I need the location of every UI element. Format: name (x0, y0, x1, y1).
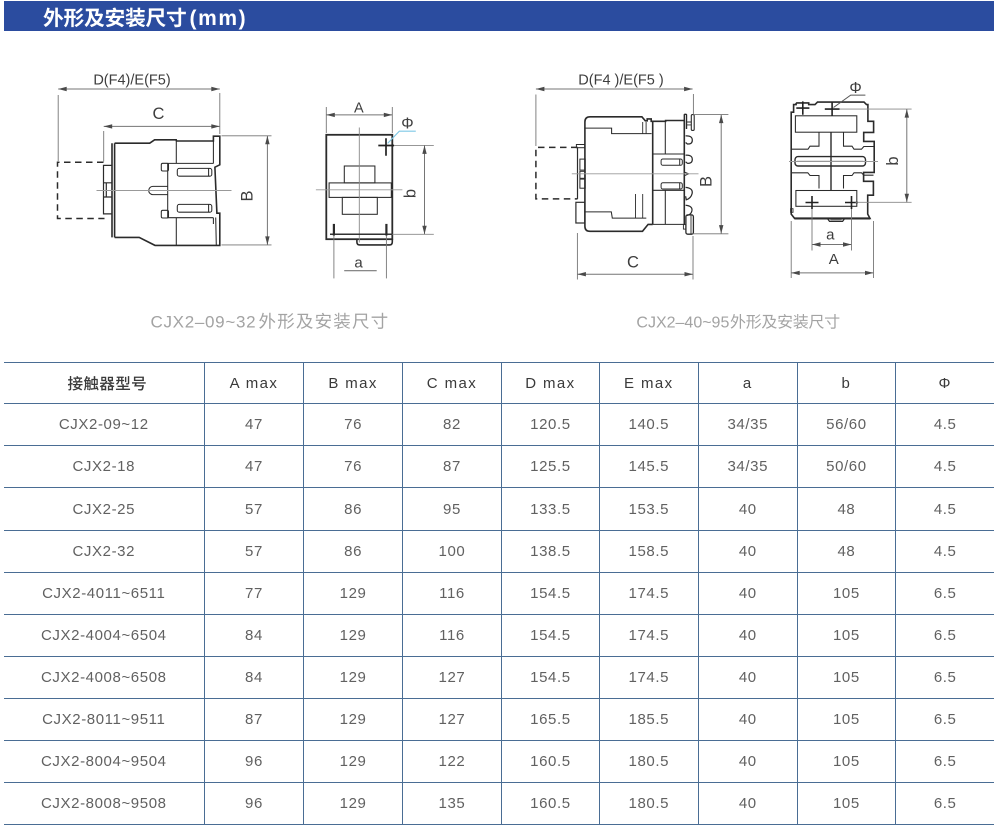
svg-text:a: a (354, 254, 363, 271)
svg-text:C: C (153, 105, 165, 123)
svg-text:b: b (884, 156, 902, 165)
svg-text:C: C (627, 254, 639, 272)
svg-text:CJX2–09~32: CJX2–09~32 (151, 313, 257, 332)
svg-text:B: B (698, 176, 716, 187)
svg-text:D(F4 )/E(F5 ): D(F4 )/E(F5 ) (578, 73, 663, 89)
svg-text:CJX2–40~95: CJX2–40~95 (636, 315, 729, 332)
svg-text:A: A (354, 100, 364, 116)
svg-text:B: B (239, 190, 257, 201)
svg-text:D(F4)/E(F5): D(F4)/E(F5) (93, 73, 170, 89)
svg-text:Φ: Φ (849, 80, 861, 97)
svg-text:Φ: Φ (401, 116, 413, 133)
svg-text:(mm): (mm) (190, 7, 248, 30)
svg-text:b: b (401, 189, 419, 198)
svg-text:A: A (829, 251, 839, 268)
svg-text:a: a (826, 227, 835, 244)
